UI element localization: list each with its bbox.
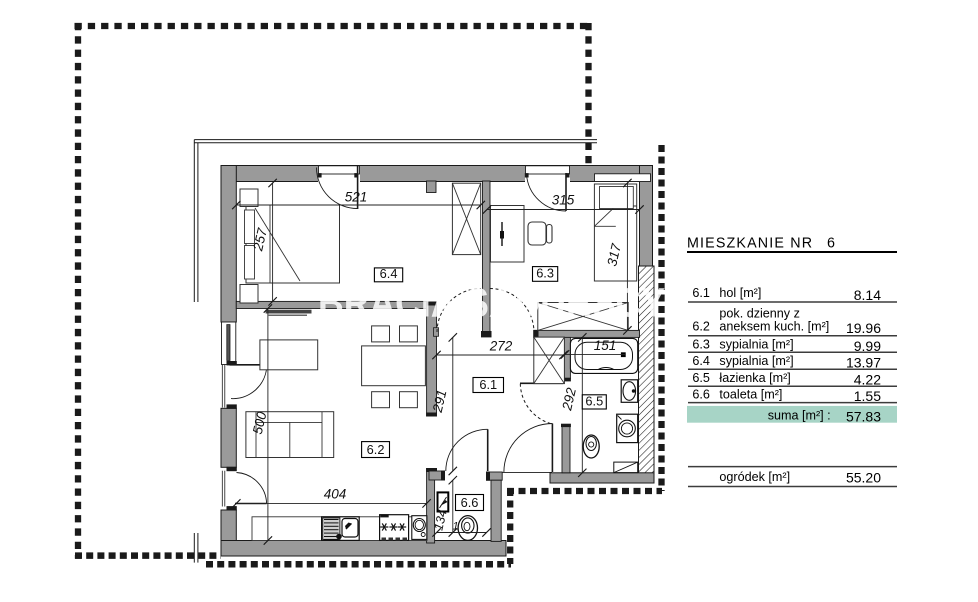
svg-text:315: 315: [552, 193, 575, 208]
svg-text:4.22: 4.22: [854, 371, 881, 387]
svg-text:6.5: 6.5: [585, 393, 603, 408]
svg-text:9.99: 9.99: [854, 338, 881, 354]
svg-text:6.1: 6.1: [479, 377, 497, 392]
svg-text:13.97: 13.97: [846, 355, 881, 371]
svg-text:57.83: 57.83: [846, 408, 881, 424]
svg-text:272: 272: [489, 339, 513, 354]
svg-text:6.3: 6.3: [692, 337, 710, 351]
svg-text:sypialnia [m²]: sypialnia [m²]: [719, 354, 793, 368]
svg-text:6.4: 6.4: [380, 266, 398, 281]
svg-text:404: 404: [324, 487, 347, 502]
svg-text:6.6: 6.6: [692, 388, 710, 402]
svg-text:6.1: 6.1: [692, 286, 710, 300]
svg-text:6.2: 6.2: [367, 442, 385, 457]
svg-text:toaleta [m²]: toaleta [m²]: [719, 388, 782, 402]
svg-text:MIESZKANIE NR: MIESZKANIE NR: [687, 236, 813, 252]
svg-text:6.4: 6.4: [692, 354, 710, 368]
svg-text:6.2: 6.2: [692, 320, 710, 334]
svg-text:292: 292: [559, 386, 579, 413]
svg-text:6.3: 6.3: [536, 266, 554, 281]
svg-text:BRACIA SADURSCY: BRACIA SADURSCY: [318, 280, 665, 326]
svg-text:ogródek [m²]: ogródek [m²]: [719, 470, 790, 484]
svg-text:19.96: 19.96: [846, 320, 881, 336]
svg-text:sypialnia [m²]: sypialnia [m²]: [719, 337, 793, 351]
svg-text:6.5: 6.5: [692, 371, 710, 385]
svg-text:151: 151: [594, 338, 617, 353]
svg-text:55.20: 55.20: [846, 470, 881, 486]
svg-text:suma [m²] :: suma [m²] :: [768, 408, 831, 422]
svg-text:8.14: 8.14: [854, 287, 881, 303]
svg-text:1.55: 1.55: [854, 388, 881, 404]
svg-text:6.6: 6.6: [461, 495, 479, 510]
svg-text:hol [m²]: hol [m²]: [719, 286, 761, 300]
svg-text:521: 521: [345, 190, 368, 205]
svg-text:1: 1: [452, 521, 458, 533]
svg-text:łazienka [m²]: łazienka [m²]: [719, 371, 790, 385]
svg-text:6: 6: [827, 236, 835, 252]
svg-text:pok. dzienny z: pok. dzienny z: [719, 306, 800, 320]
svg-text:aneksem kuch. [m²]: aneksem kuch. [m²]: [719, 320, 829, 334]
